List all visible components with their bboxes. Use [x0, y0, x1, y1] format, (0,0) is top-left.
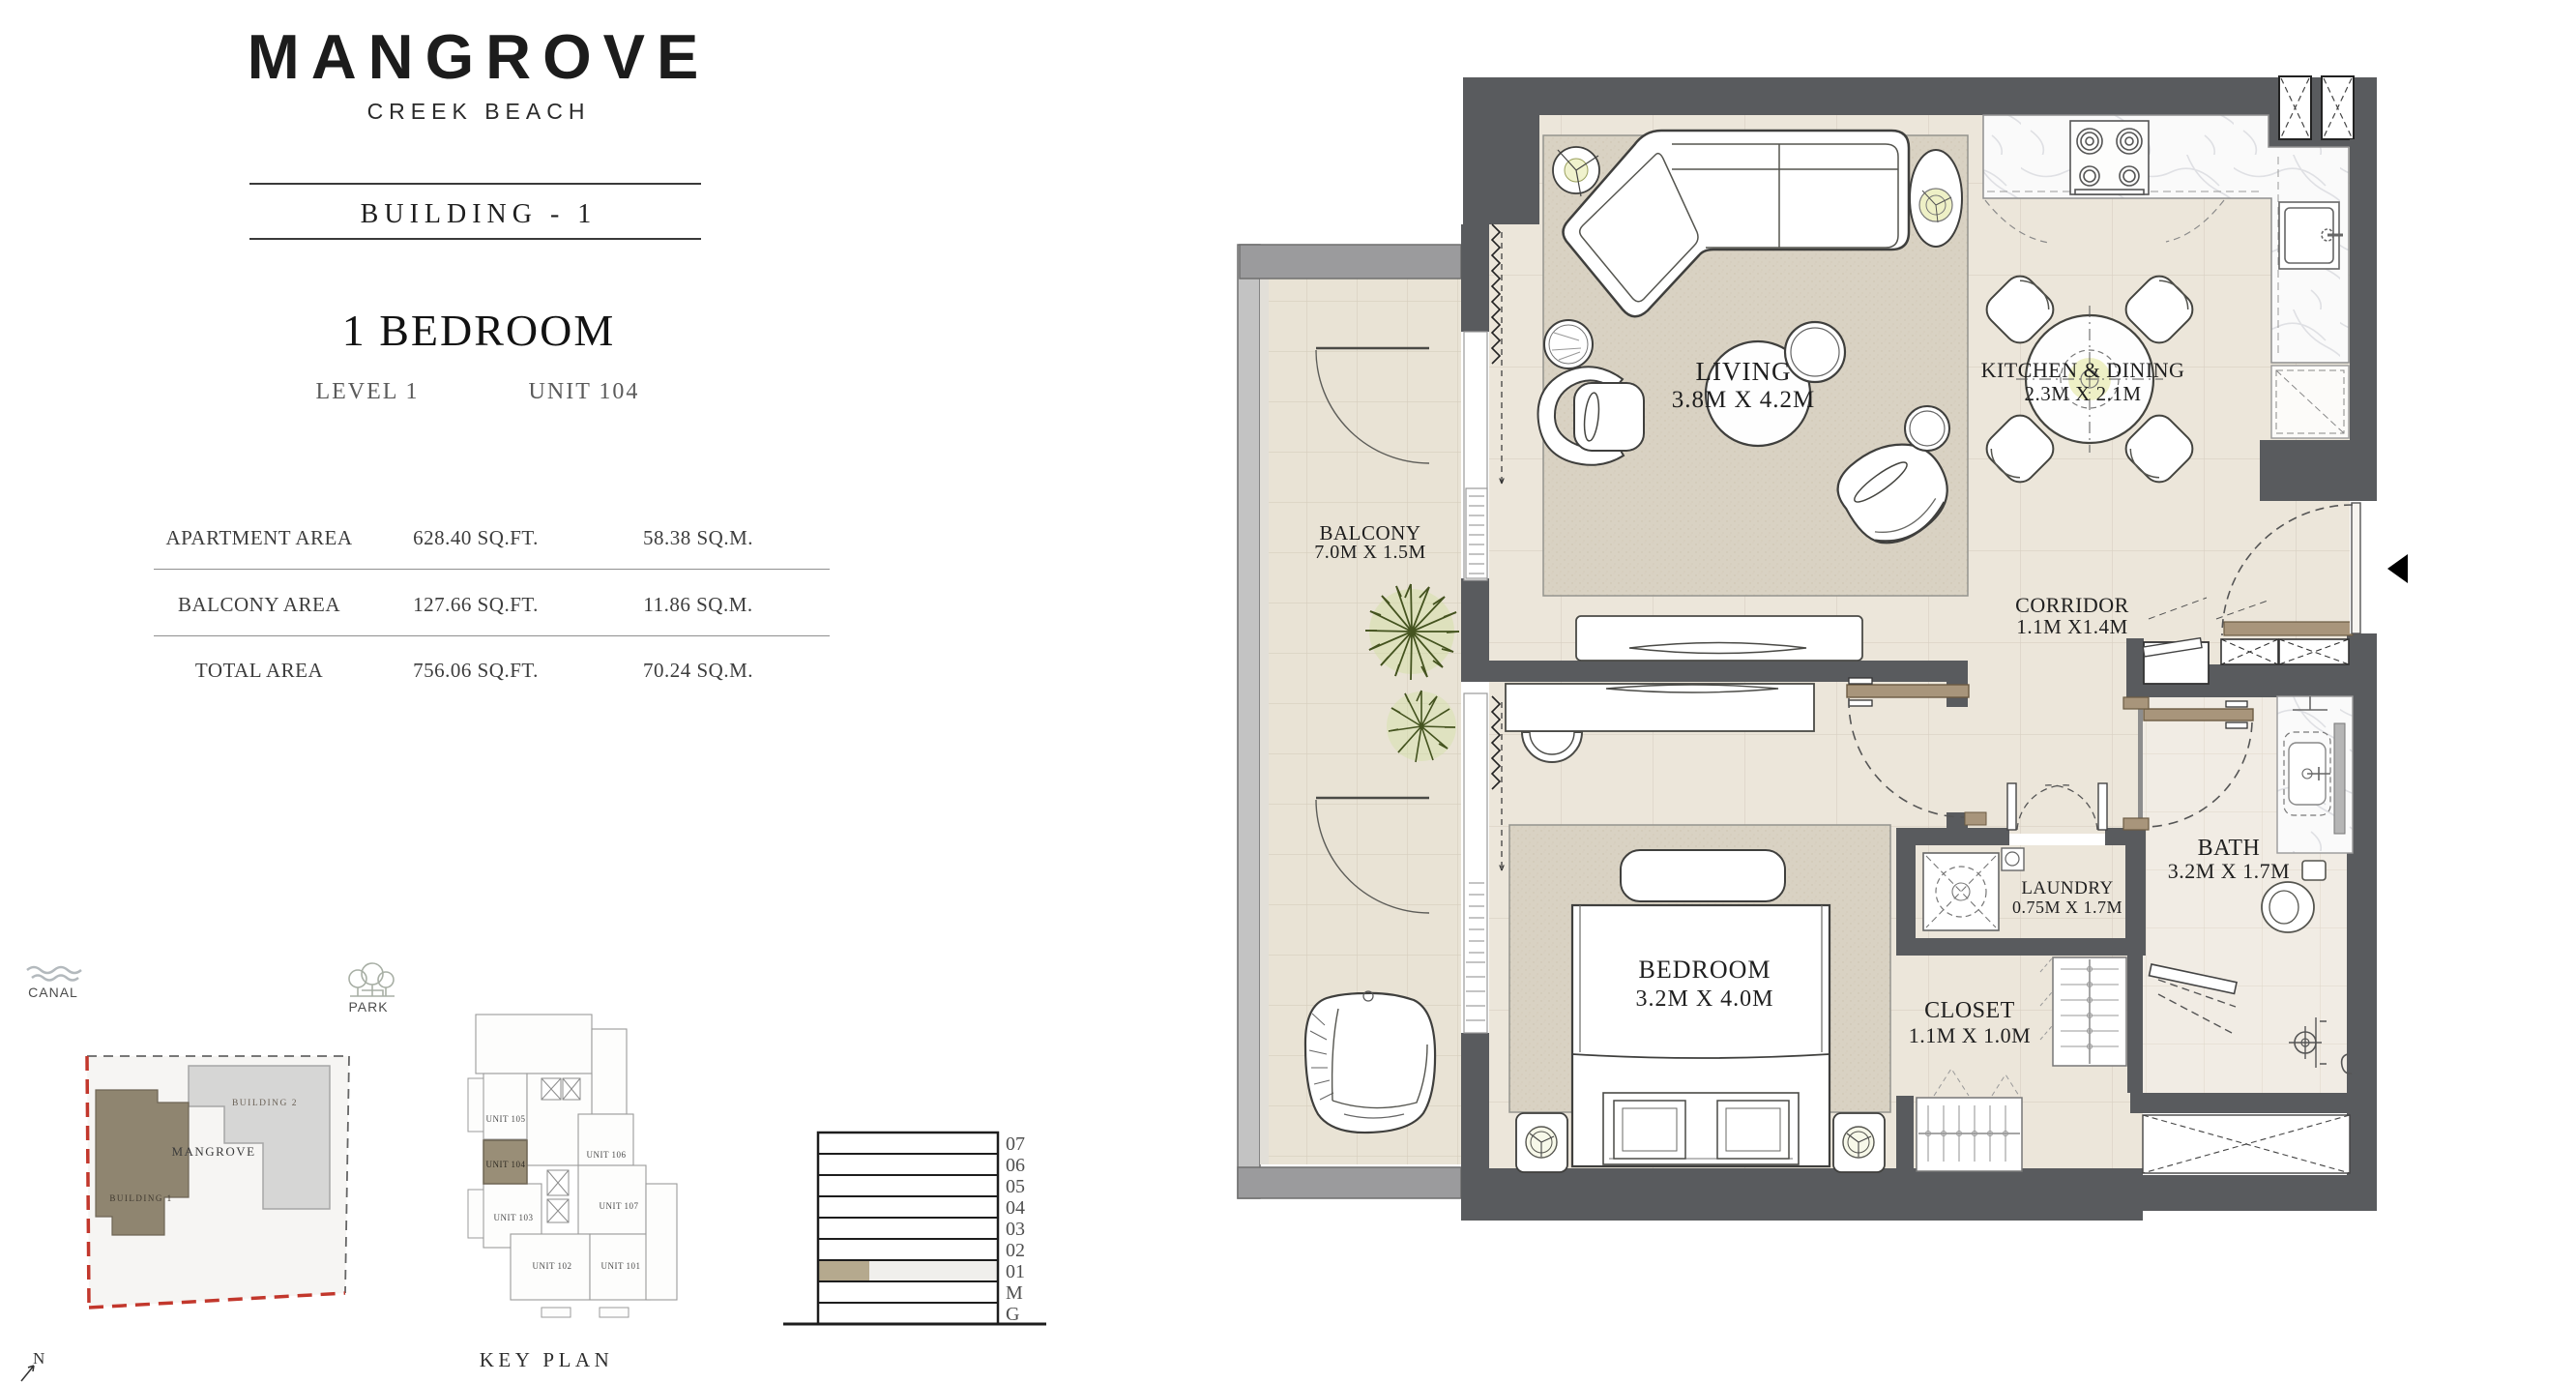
svg-text:02: 02 [1006, 1240, 1025, 1261]
svg-text:G: G [1006, 1304, 1019, 1325]
svg-text:04: 04 [1006, 1197, 1025, 1219]
svg-text:N: N [33, 1349, 44, 1368]
svg-text:MANGROVE: MANGROVE [171, 1144, 255, 1159]
svg-text:BEDROOM: BEDROOM [1638, 956, 1771, 984]
svg-text:05: 05 [1006, 1176, 1025, 1197]
svg-text:0.75M X 1.7M: 0.75M X 1.7M [2012, 897, 2122, 917]
svg-text:UNIT 107: UNIT 107 [599, 1201, 638, 1211]
svg-text:1.1M X1.4M: 1.1M X1.4M [2016, 615, 2127, 638]
svg-text:CORRIDOR: CORRIDOR [2015, 593, 2129, 617]
svg-text:2.3M X 2.1M: 2.3M X 2.1M [2024, 382, 2141, 405]
svg-text:BATH: BATH [2198, 836, 2261, 861]
svg-text:UNIT 102: UNIT 102 [532, 1261, 571, 1271]
svg-text:UNIT 103: UNIT 103 [493, 1213, 533, 1222]
svg-text:PARK: PARK [348, 999, 388, 1015]
svg-text:LAUNDRY: LAUNDRY [2021, 878, 2113, 898]
svg-text:01: 01 [1006, 1261, 1025, 1282]
svg-text:07: 07 [1006, 1133, 1025, 1155]
svg-text:3.8M X 4.2M: 3.8M X 4.2M [1672, 387, 1816, 413]
svg-text:BUILDING 1: BUILDING 1 [109, 1193, 172, 1203]
svg-text:UNIT 101: UNIT 101 [600, 1261, 640, 1271]
svg-text:UNIT 104: UNIT 104 [485, 1160, 525, 1169]
svg-text:M: M [1006, 1282, 1023, 1304]
svg-text:BUILDING 2: BUILDING 2 [232, 1099, 298, 1108]
svg-text:LIVING: LIVING [1696, 357, 1792, 386]
svg-text:06: 06 [1006, 1155, 1025, 1176]
svg-text:CANAL: CANAL [28, 985, 78, 1000]
svg-text:KEY PLAN: KEY PLAN [480, 1348, 613, 1371]
svg-text:UNIT 105: UNIT 105 [485, 1114, 525, 1124]
svg-text:03: 03 [1006, 1219, 1025, 1240]
svg-text:3.2M X 1.7M: 3.2M X 1.7M [2168, 859, 2291, 883]
svg-text:UNIT 106: UNIT 106 [586, 1150, 626, 1160]
svg-text:7.0M X 1.5M: 7.0M X 1.5M [1314, 542, 1426, 563]
svg-text:1.1M X 1.0M: 1.1M X 1.0M [1909, 1023, 2032, 1047]
svg-text:KITCHEN & DINING: KITCHEN & DINING [1981, 358, 2185, 382]
svg-text:3.2M X 4.0M: 3.2M X 4.0M [1635, 986, 1773, 1012]
svg-text:CLOSET: CLOSET [1924, 998, 2015, 1023]
